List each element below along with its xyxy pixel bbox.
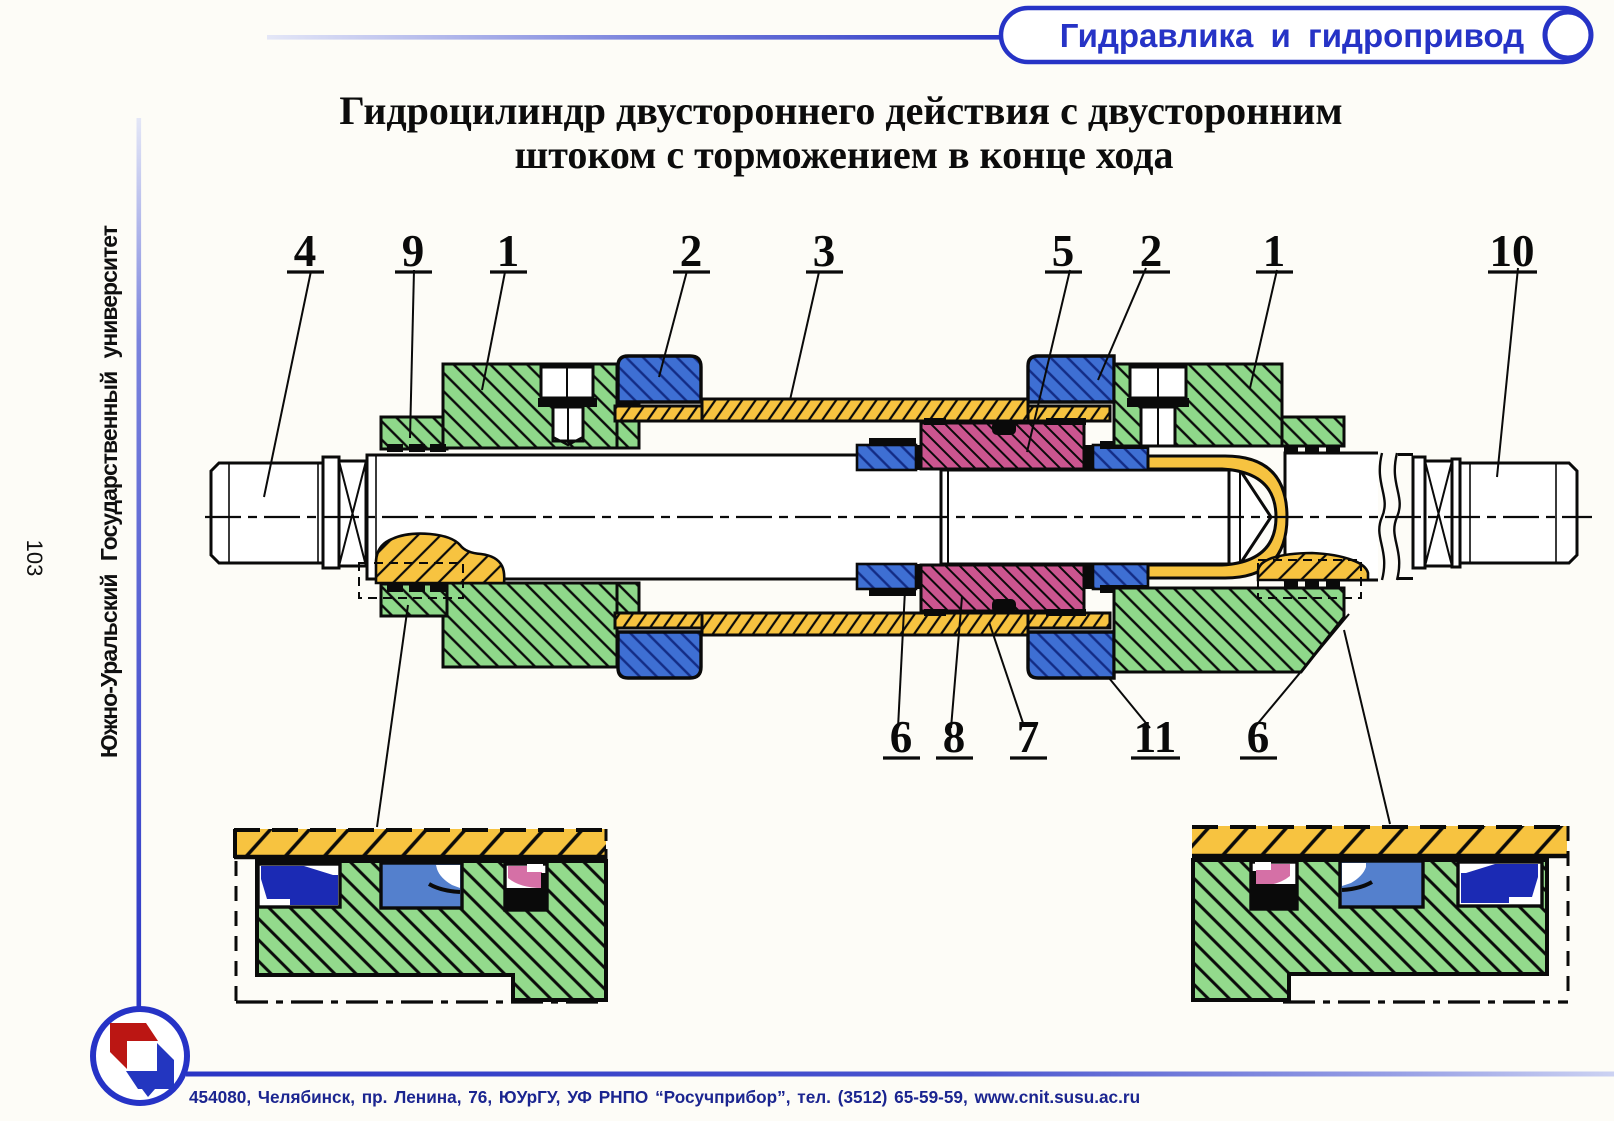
svg-text:1: 1 <box>497 226 520 276</box>
svg-text:6: 6 <box>1247 712 1270 762</box>
svg-text:Южно-Уральский Государственный: Южно-Уральский Государственный университ… <box>96 225 122 758</box>
svg-text:9: 9 <box>402 226 425 276</box>
svg-text:3: 3 <box>813 226 836 276</box>
svg-text:2: 2 <box>680 226 703 276</box>
svg-text:4: 4 <box>294 226 317 276</box>
svg-text:5: 5 <box>1052 226 1075 276</box>
svg-text:10: 10 <box>1490 226 1535 276</box>
svg-text:8: 8 <box>943 712 966 762</box>
svg-text:Гидравлика и гидропривод: Гидравлика и гидропривод <box>1060 17 1524 54</box>
svg-text:6: 6 <box>890 712 913 762</box>
svg-text:7: 7 <box>1017 712 1040 762</box>
svg-text:11: 11 <box>1134 712 1177 762</box>
svg-text:103: 103 <box>22 540 47 577</box>
svg-text:454080, Челябинск, пр. Ленина,: 454080, Челябинск, пр. Ленина, 76, ЮУрГУ… <box>189 1087 1140 1107</box>
svg-text:Гидроцилиндр двустороннего дей: Гидроцилиндр двустороннего действия с дв… <box>339 88 1342 133</box>
svg-text:2: 2 <box>1140 226 1163 276</box>
svg-text:1: 1 <box>1263 226 1286 276</box>
svg-text:штоком с торможением в конце х: штоком с торможением в конце хода <box>515 132 1174 177</box>
